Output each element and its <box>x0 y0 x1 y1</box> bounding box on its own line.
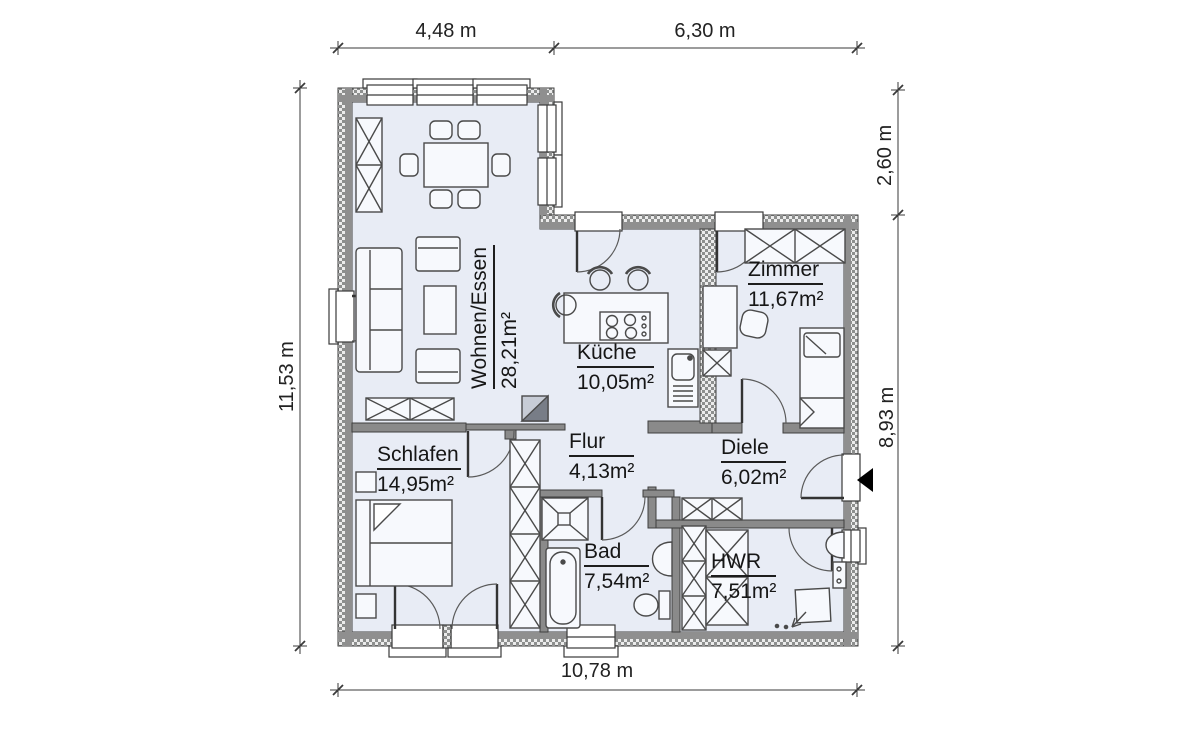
room-name: Zimmer <box>748 258 823 285</box>
kitchen-island <box>564 293 668 343</box>
hall-sideboard <box>682 498 742 520</box>
coffee-table <box>424 286 456 334</box>
room-area: 7,51m² <box>711 577 776 604</box>
room-area: 14,95m² <box>377 470 461 497</box>
room-label-diele: Diele 6,02m² <box>721 436 786 490</box>
room-name: Diele <box>721 436 786 463</box>
room-name: Flur <box>569 430 634 457</box>
room-label-schlafen: Schlafen 14,95m² <box>377 443 461 497</box>
small-cabinet <box>703 350 731 376</box>
dimension-right-upper: 2,60 m <box>874 125 897 186</box>
dimension-top-right: 6,30 m <box>674 20 735 43</box>
kitchen-sink <box>668 349 698 407</box>
tall-cabinet <box>356 118 382 212</box>
room-name: HWR <box>711 550 776 577</box>
room-area: 6,02m² <box>721 463 786 490</box>
utility-cabinet <box>682 526 706 630</box>
dimension-bottom: 10,78 m <box>561 660 633 683</box>
armchair <box>416 349 460 383</box>
room-label-bad: Bad 7,54m² <box>584 540 649 594</box>
room-label-wohnen: Wohnen/Essen 28,21m² <box>468 245 522 389</box>
desk <box>703 286 737 348</box>
dimension-left: 11,53 m <box>276 341 299 412</box>
room-name: Bad <box>584 540 649 567</box>
room-label-zimmer: Zimmer 11,67m² <box>748 258 823 312</box>
wall-panel <box>833 562 846 588</box>
shower <box>542 498 588 540</box>
nightstand <box>356 594 376 618</box>
double-bed <box>356 500 452 586</box>
desk-chair <box>739 309 770 340</box>
room-label-hwr: HWR 7,51m² <box>711 550 776 604</box>
sofa <box>356 248 402 372</box>
nightstand <box>356 472 376 492</box>
toilet <box>634 591 670 619</box>
dimension-right-lower: 8,93 m <box>876 387 899 448</box>
room-area: 7,54m² <box>584 567 649 594</box>
bathtub <box>546 548 580 628</box>
room-area: 10,05m² <box>577 368 654 395</box>
floor-plan-page: Wohnen/Essen 28,21m² Küche 10,05m² Zimme… <box>0 0 1200 749</box>
room-area: 4,13m² <box>569 457 634 484</box>
dimension-top-left: 4,48 m <box>415 20 476 43</box>
room-name: Wohnen/Essen <box>468 245 495 389</box>
room-name: Küche <box>577 341 654 368</box>
room-name: Schlafen <box>377 443 461 470</box>
chimney <box>522 396 548 421</box>
room-area: 28,21m² <box>495 245 522 389</box>
sideboard <box>366 398 454 420</box>
armchair <box>416 237 460 271</box>
single-bed <box>800 328 844 428</box>
room-area: 11,67m² <box>748 285 823 312</box>
built-in-wardrobe <box>510 440 540 628</box>
room-label-flur: Flur 4,13m² <box>569 430 634 484</box>
room-label-kueche: Küche 10,05m² <box>577 341 654 395</box>
